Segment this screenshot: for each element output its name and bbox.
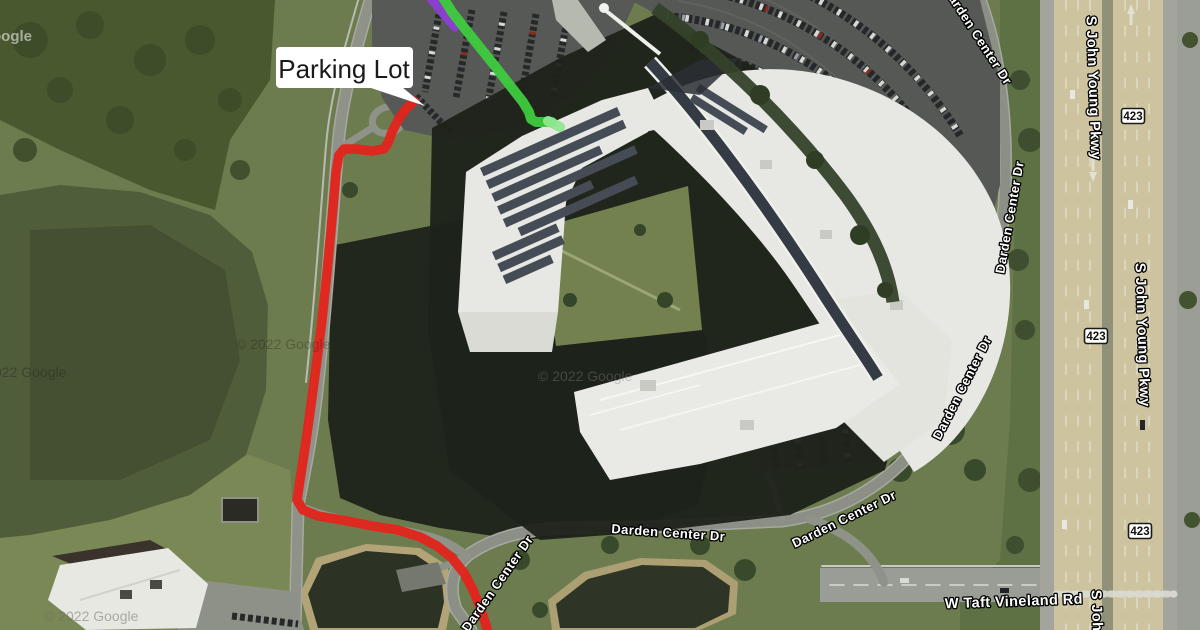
- highway-shield: 423: [1129, 524, 1152, 539]
- pkwy-median: [1102, 0, 1113, 630]
- map-watermark: © 2022 Google: [44, 608, 139, 624]
- map-watermark: © 2022 Google: [0, 364, 67, 380]
- shield-number: 423: [1123, 111, 1142, 123]
- crane-base: [599, 3, 609, 13]
- map-watermark: © 2022 Google: [538, 368, 633, 384]
- building-west-plaza: [458, 312, 558, 352]
- map-watermark: © 2022 Google: [236, 336, 331, 352]
- shield-number: 423: [1130, 526, 1149, 538]
- shield-number: 423: [1086, 331, 1105, 343]
- map-watermark: oogle: [0, 28, 32, 45]
- route-green-tip: [548, 121, 560, 127]
- pkwy-shoulder-right: [1163, 0, 1177, 630]
- utility-pad: [222, 498, 258, 522]
- map-canvas[interactable]: oogle© 2022 Google© 2022 Google© 2022 Go…: [0, 0, 1200, 630]
- highway-shield: 423: [1085, 329, 1108, 344]
- callout-label: Parking Lot: [278, 54, 410, 84]
- pkwy-shoulder-left: [1040, 0, 1054, 630]
- frontage-road: [1177, 0, 1200, 630]
- highway-shield: 423: [1122, 109, 1145, 124]
